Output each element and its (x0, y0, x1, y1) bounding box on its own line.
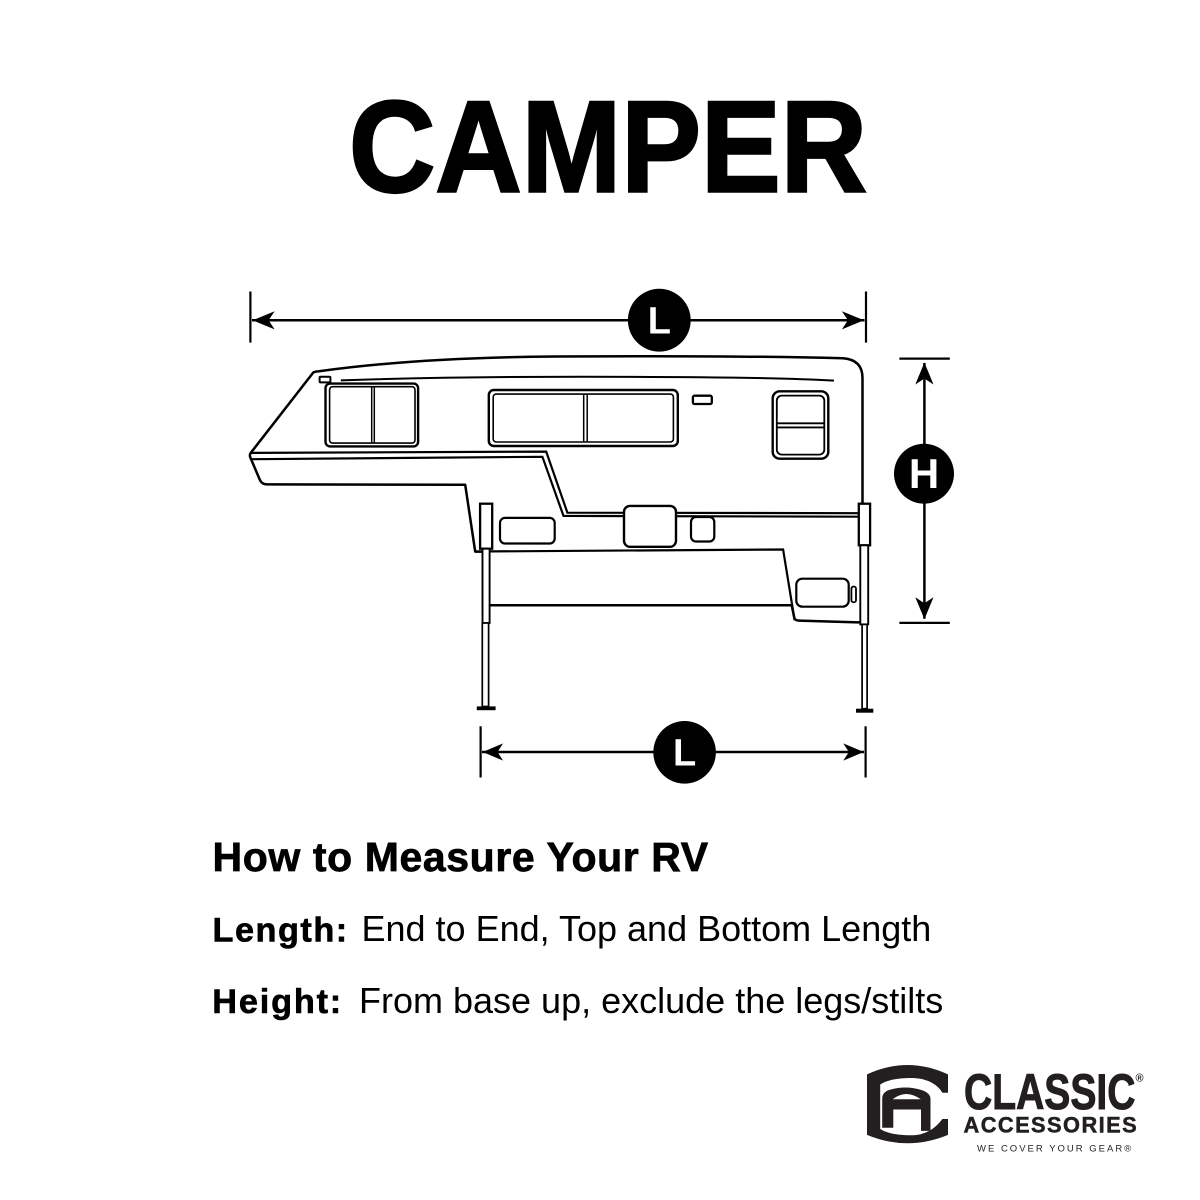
svg-text:H: H (909, 450, 939, 497)
svg-text:CAMPER: CAMPER (349, 74, 867, 220)
svg-text:Height:: Height: (212, 983, 343, 1021)
svg-text:From base up, exclude the legs: From base up, exclude the legs/stilts (359, 980, 943, 1021)
svg-text:Length:: Length: (213, 911, 349, 949)
svg-text:L: L (673, 733, 696, 775)
svg-text:CLASSIC: CLASSIC (964, 1064, 1136, 1120)
svg-text:®: ® (1136, 1073, 1144, 1085)
svg-text:L: L (648, 300, 671, 342)
svg-text:WE COVER YOUR GEAR®: WE COVER YOUR GEAR® (977, 1143, 1133, 1154)
svg-text:End to End, Top and Bottom Len: End to End, Top and Bottom Length (362, 908, 932, 949)
svg-text:ACCESSORIES: ACCESSORIES (964, 1112, 1139, 1137)
svg-text:How to Measure Your RV: How to Measure Your RV (213, 834, 709, 880)
